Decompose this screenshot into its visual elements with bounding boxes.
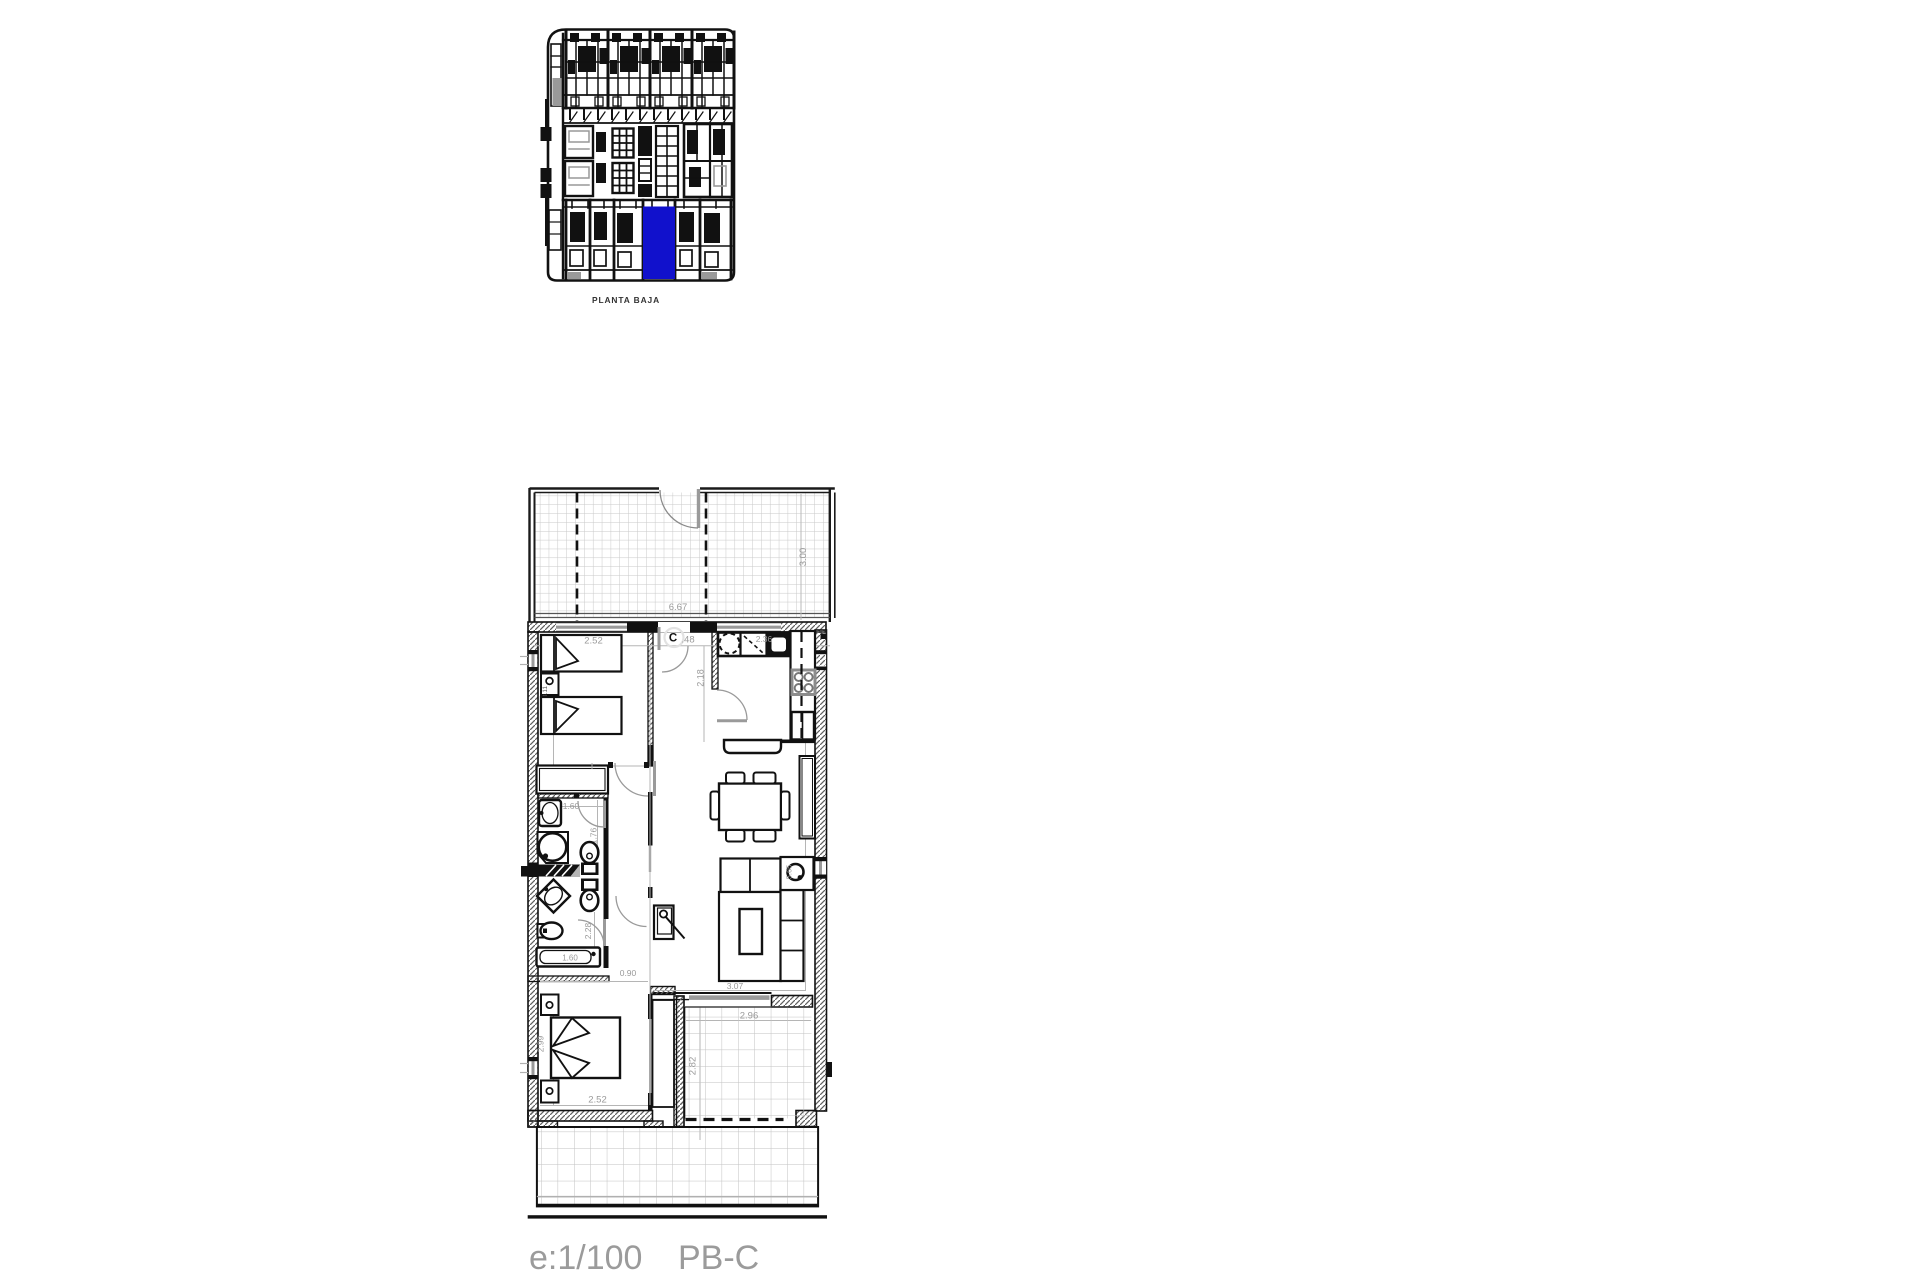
svg-text:2.52: 2.52 [588,1095,607,1106]
svg-text:2.99: 2.99 [536,1035,546,1052]
svg-text:C: C [669,633,677,645]
svg-text:3.00: 3.00 [798,548,809,567]
svg-text:5.65: 5.65 [785,865,794,880]
svg-text:2.18: 2.18 [695,669,705,687]
svg-text:2.52: 2.52 [584,636,603,647]
svg-text:0.90: 0.90 [620,968,637,978]
svg-text:PLANTA BAJA: PLANTA BAJA [592,295,660,305]
svg-text:2.36: 2.36 [756,634,773,644]
svg-text:PB-C: PB-C [678,1239,759,1277]
svg-text:3.07: 3.07 [727,981,744,991]
svg-text:2.82: 2.82 [687,1057,698,1076]
svg-text:1.60: 1.60 [562,954,578,963]
svg-text:6.67: 6.67 [669,602,688,613]
svg-text:2.28: 2.28 [583,922,593,939]
svg-text:1.60: 1.60 [563,801,580,811]
svg-text:.48: .48 [681,635,694,646]
svg-text:e:1/100: e:1/100 [529,1239,642,1277]
svg-text:2.96: 2.96 [740,1011,759,1022]
